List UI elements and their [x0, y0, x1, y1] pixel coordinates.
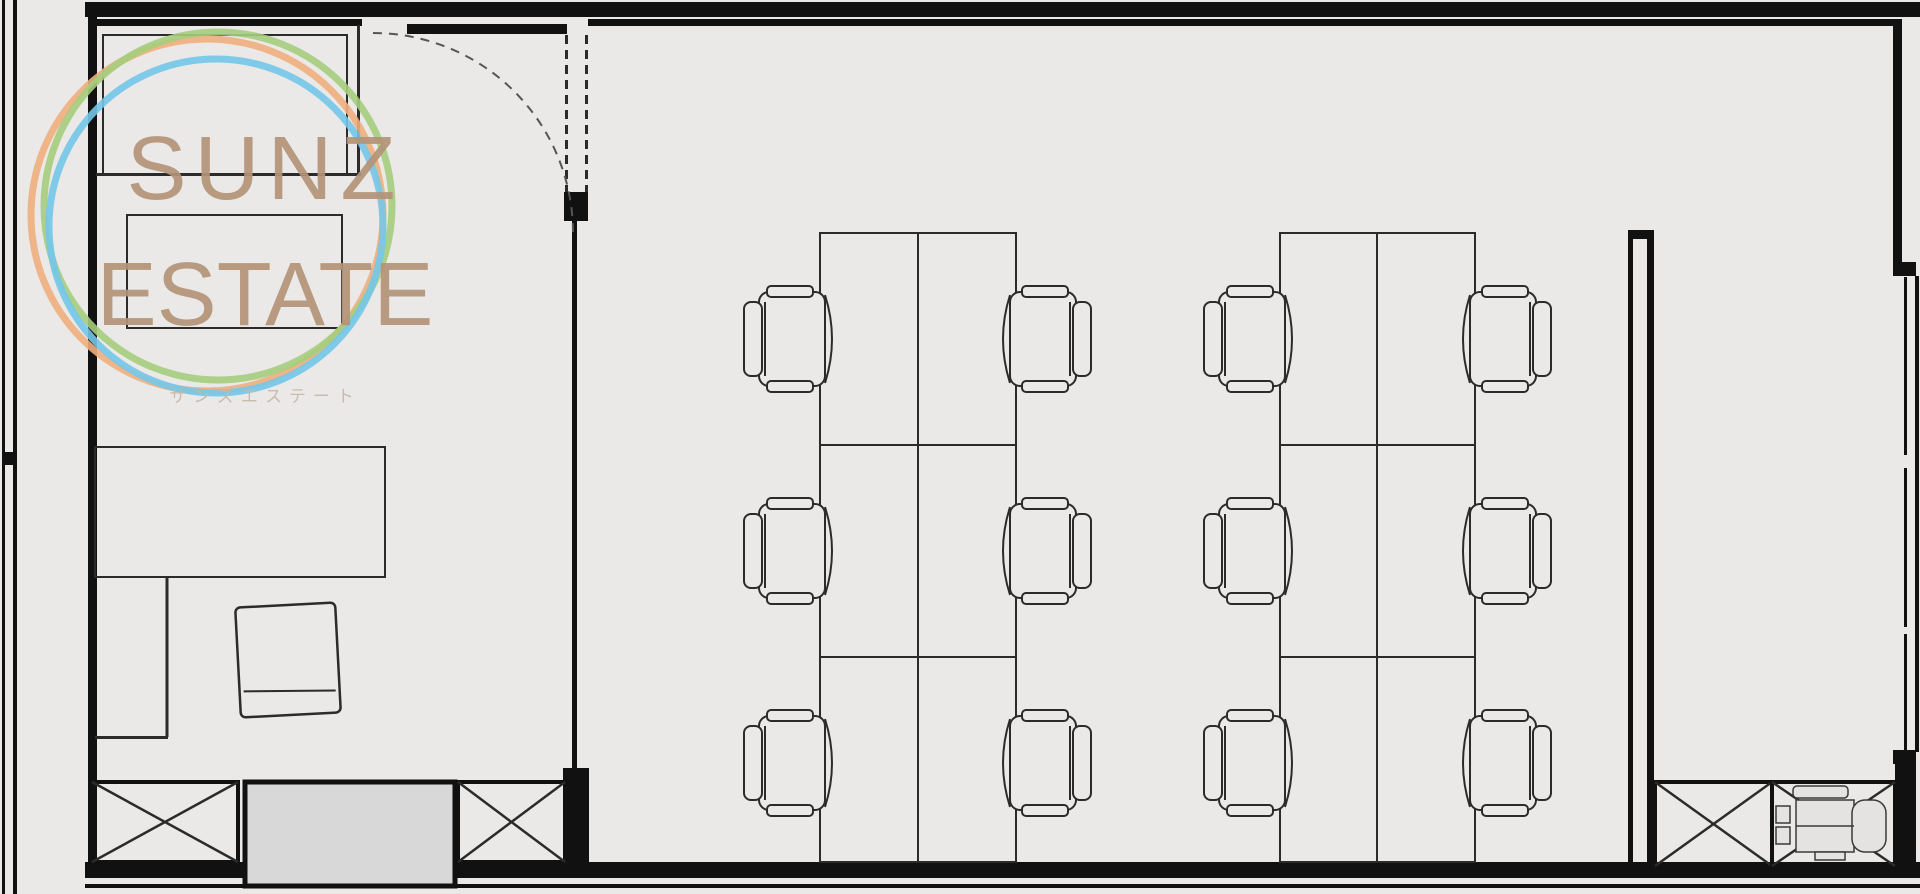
balcony-hatch-left-1 [92, 782, 238, 862]
office-chair [1204, 286, 1292, 392]
chair-backrest [1073, 302, 1091, 376]
office-chair [1463, 286, 1551, 392]
partition-wall-line [572, 221, 577, 768]
chair-armrest [767, 498, 813, 509]
chair-seat [1010, 716, 1076, 810]
chair-front-curve [1285, 719, 1292, 807]
chair-seat [759, 292, 825, 386]
office-chair [1463, 498, 1551, 604]
wall-right-upper [1893, 19, 1902, 266]
chair-armrest [1227, 286, 1273, 297]
chair-armrest [1022, 286, 1068, 297]
chair-front-curve [825, 507, 832, 595]
chair-armrest [1022, 593, 1068, 604]
chair-seat [759, 716, 825, 810]
office-chair [1463, 710, 1551, 816]
office-chair [1204, 710, 1292, 816]
chair-armrest [767, 381, 813, 392]
chair-armrest [1022, 805, 1068, 816]
office-chair [744, 710, 832, 816]
chair-front-curve [1463, 507, 1470, 595]
chair-armrest [1482, 498, 1528, 509]
partition2-top-cap [1628, 230, 1654, 239]
office-chair [1003, 286, 1091, 392]
chair-seat [759, 504, 825, 598]
desk-island-right [1280, 233, 1475, 862]
chair-backrest [1533, 302, 1551, 376]
manager-desk [95, 447, 385, 577]
chair-backrest [744, 302, 762, 376]
fixture-part [1793, 786, 1848, 798]
wall-right-lower [1895, 764, 1916, 876]
chair-backrest [1204, 726, 1222, 800]
chair-armrest [1482, 381, 1528, 392]
entrance-door-leaf [407, 24, 567, 34]
chair-armrest [767, 286, 813, 297]
chair-seat [1010, 504, 1076, 598]
chair-seat [1219, 292, 1285, 386]
floor-plan-canvas [0, 0, 1920, 894]
fixture-part [1852, 800, 1886, 852]
chair-backrest [1073, 514, 1091, 588]
manager-chair-outline [235, 602, 341, 717]
fixture-part [1776, 806, 1790, 823]
desk-island-left [820, 233, 1016, 862]
office-chair [744, 498, 832, 604]
chair-front-curve [1003, 295, 1010, 383]
office-chair [1204, 498, 1292, 604]
partition2-right-line [1647, 230, 1654, 862]
fixture-part [1776, 827, 1790, 844]
chair-backrest [1533, 514, 1551, 588]
chair-armrest [1227, 710, 1273, 721]
office-chair [744, 286, 832, 392]
chair-front-curve [1003, 507, 1010, 595]
fixture-part [1815, 852, 1845, 860]
balcony-hatch-right-1 [1655, 782, 1772, 866]
chair-seat [1219, 504, 1285, 598]
balcony-hatch-left-2 [458, 782, 565, 862]
chair-armrest [1227, 805, 1273, 816]
chair-armrest [767, 593, 813, 604]
chair-front-curve [825, 719, 832, 807]
window-right-outer-line [1915, 276, 1919, 752]
chair-front-curve [1285, 295, 1292, 383]
chair-armrest [1022, 710, 1068, 721]
window-right-inner-seg2 [1904, 468, 1907, 627]
chair-front-curve [1463, 719, 1470, 807]
wall-top-outer [85, 2, 1920, 17]
wall-top-inner-left [96, 19, 362, 26]
chair-armrest [1227, 498, 1273, 509]
elevator-gray-box [245, 782, 455, 886]
chair-armrest [1482, 593, 1528, 604]
reception-table [127, 215, 342, 328]
chair-seat [1010, 292, 1076, 386]
chair-armrest [1227, 593, 1273, 604]
chair-armrest [1022, 381, 1068, 392]
chair-backrest [1204, 302, 1222, 376]
wall-top-inner-right [588, 19, 1894, 26]
chair-backrest [1533, 726, 1551, 800]
chair-armrest [1022, 498, 1068, 509]
entrance-glass-post [564, 192, 588, 221]
window-right-inner-seg1 [1904, 277, 1907, 455]
chair-seat [1470, 716, 1536, 810]
chair-backrest [744, 514, 762, 588]
chair-front-curve [825, 295, 832, 383]
chair-backrest [1204, 514, 1222, 588]
wall-right-cap-upper [1893, 262, 1916, 276]
chair-armrest [767, 805, 813, 816]
window-right-inner-seg3 [1904, 634, 1907, 750]
chair-armrest [1227, 381, 1273, 392]
wall-right-cap-lower [1893, 750, 1916, 764]
chair-seat [1470, 292, 1536, 386]
chair-seat [1219, 716, 1285, 810]
chair-front-curve [1463, 295, 1470, 383]
chair-front-curve [1285, 507, 1292, 595]
partition2-left-line [1628, 230, 1633, 862]
chair-seat [1470, 504, 1536, 598]
chair-front-curve [1003, 719, 1010, 807]
outer-left-line-1 [2, 0, 5, 894]
manager-chair [235, 602, 341, 717]
outer-left-line-2 [13, 0, 17, 894]
chair-backrest [744, 726, 762, 800]
wall-left [88, 2, 97, 878]
ring-blue [49, 59, 383, 393]
chair-armrest [1482, 710, 1528, 721]
chair-armrest [1482, 286, 1528, 297]
chair-armrest [1482, 805, 1528, 816]
outer-left-tick [3, 452, 17, 465]
chair-armrest [767, 710, 813, 721]
entrance-door-swing-arc [373, 33, 573, 233]
office-chair [1003, 710, 1091, 816]
chair-backrest [1073, 726, 1091, 800]
floor-plan-image: SUNZ ESTATE サンズエステート [0, 0, 1920, 894]
office-chair [1003, 498, 1091, 604]
